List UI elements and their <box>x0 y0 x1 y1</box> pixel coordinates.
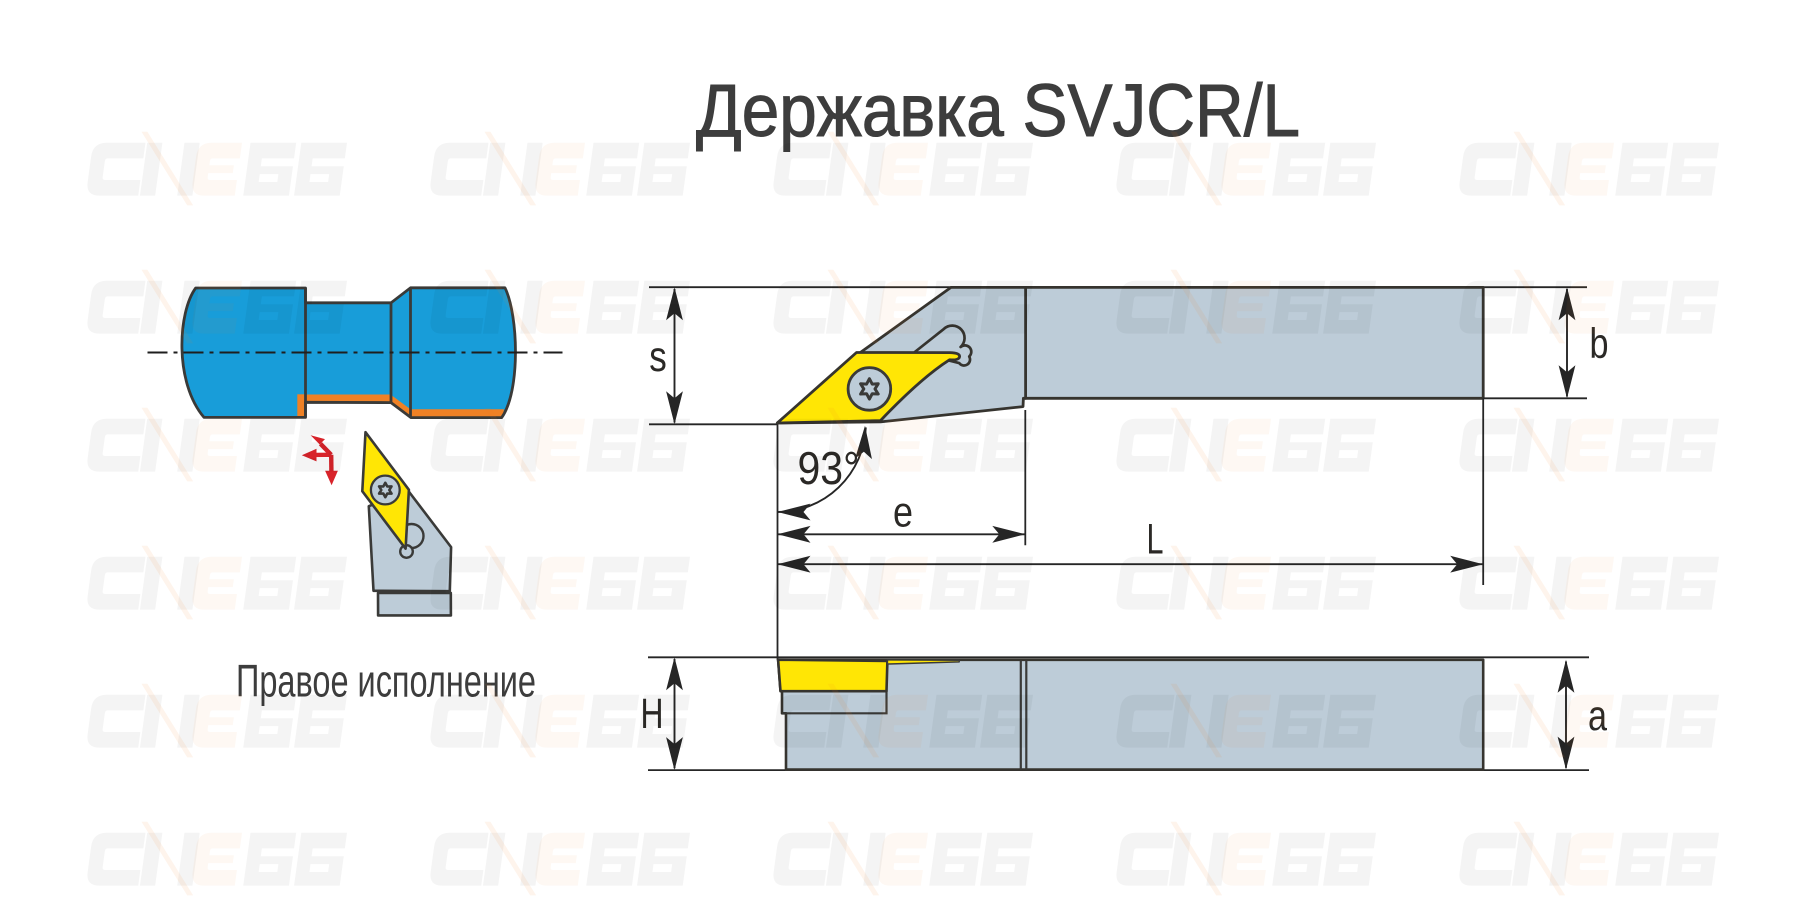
svg-text:e: e <box>893 489 913 537</box>
svg-text:Державка SVJCR/L: Державка SVJCR/L <box>696 69 1300 152</box>
svg-text:s: s <box>649 333 667 381</box>
svg-text:L: L <box>1147 516 1164 564</box>
